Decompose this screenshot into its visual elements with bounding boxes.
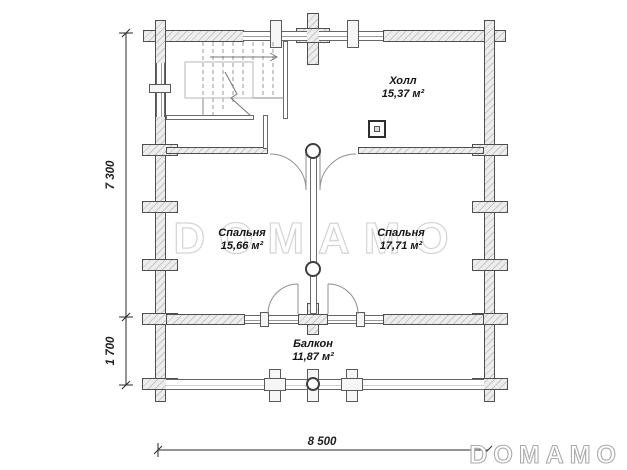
- log-tie-south-right: [356, 312, 365, 327]
- room-area: 15,66 м²: [187, 240, 297, 253]
- partition-stairs-vertical: [283, 41, 288, 119]
- dimension-vertical: [119, 29, 133, 389]
- staircase: [185, 42, 284, 116]
- wall-south-right: [383, 314, 484, 325]
- room-area: 15,37 м²: [348, 88, 458, 101]
- partition-stairs-stub: [263, 115, 268, 149]
- flue-symbol-inner: [374, 126, 380, 132]
- dimension-balcony-label: 1 700: [105, 336, 117, 365]
- room-name: Спальня: [346, 227, 456, 240]
- floor-plan-canvas: 7 300 1 700 8 500 DOMAMO DOMAMO Холл 15,…: [0, 0, 627, 470]
- log-tie-top-1: [270, 20, 282, 48]
- balcony-post-left-arm: [264, 378, 286, 391]
- wall-middle-right: [358, 147, 484, 154]
- dimension-horizontal: [154, 443, 492, 457]
- balcony-railing: [166, 379, 484, 390]
- partition-bedrooms: [310, 154, 317, 314]
- wall-middle-left: [166, 147, 268, 154]
- log-tie-top-2: [347, 20, 359, 48]
- room-label-balcony: Балкон 11,87 м²: [258, 338, 368, 363]
- partition-stairs-horizontal: [166, 115, 254, 120]
- log-tie-south-left: [260, 312, 269, 327]
- room-name: Балкон: [258, 338, 368, 351]
- room-label-hall: Холл 15,37 м²: [348, 75, 458, 100]
- log-crossing-left-3: [142, 259, 178, 271]
- log-tie-left-window: [149, 84, 171, 93]
- window-south-left: [245, 315, 298, 324]
- log-crossing-left-2: [142, 201, 178, 213]
- wall-south-left: [166, 314, 245, 325]
- post-circle-balcony: [306, 377, 320, 391]
- log-crossing-right-2: [472, 201, 508, 213]
- room-name: Спальня: [187, 227, 297, 240]
- south-center-post-horizontal: [298, 314, 328, 325]
- room-name: Холл: [348, 75, 458, 88]
- balcony-post-right-arm: [341, 378, 363, 391]
- post-circle-middle-wall: [305, 143, 321, 159]
- room-area: 11,87 м²: [258, 351, 368, 364]
- logo-text: DOMAMO: [469, 441, 622, 469]
- post-circle-partition: [305, 261, 321, 277]
- log-crossing-right-3: [472, 259, 508, 271]
- room-label-bedroom-left: Спальня 15,66 м²: [187, 227, 297, 252]
- room-area: 17,71 м²: [346, 240, 456, 253]
- dimension-depth-label: 7 300: [105, 160, 117, 189]
- room-label-bedroom-right: Спальня 17,71 м²: [346, 227, 456, 252]
- dimension-width-label: 8 500: [308, 436, 337, 448]
